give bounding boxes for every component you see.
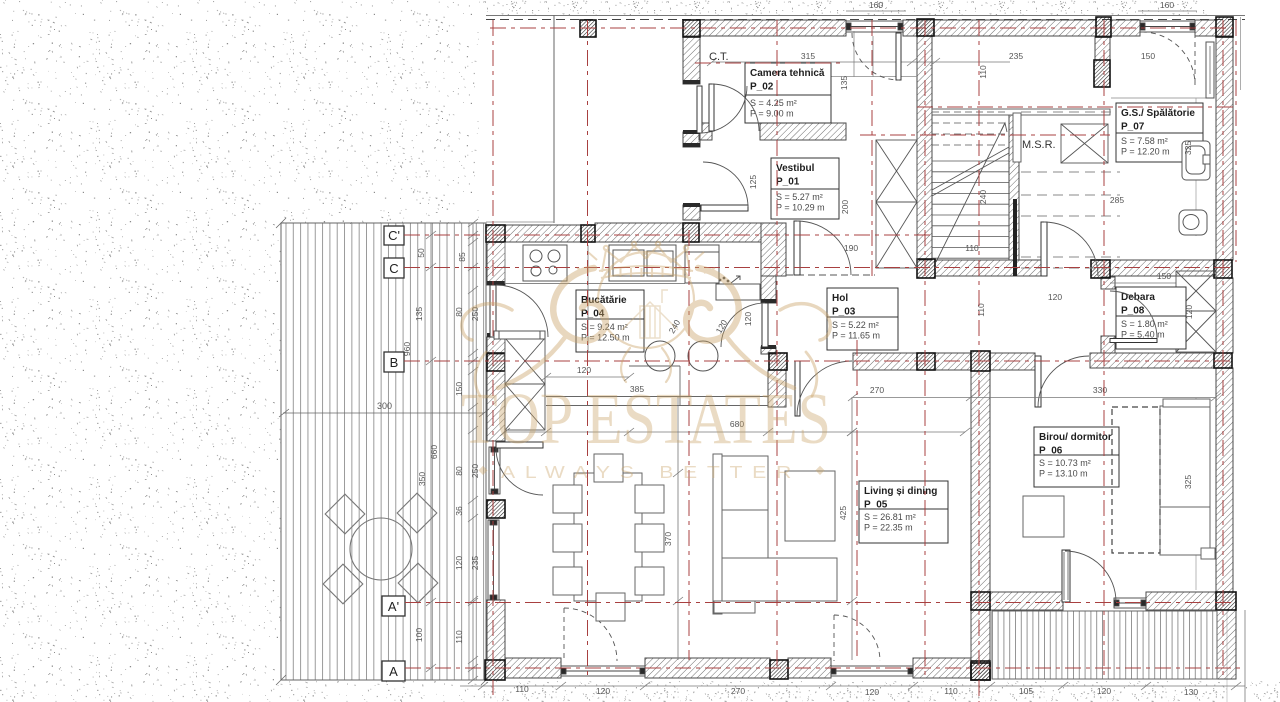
svg-text:125: 125: [748, 175, 758, 189]
svg-text:C: C: [389, 261, 398, 276]
svg-text:150: 150: [1157, 271, 1171, 281]
svg-text:325: 325: [1183, 141, 1193, 155]
svg-text:110: 110: [454, 630, 464, 644]
svg-text:110: 110: [976, 303, 986, 317]
svg-text:80: 80: [454, 466, 464, 476]
svg-text:235: 235: [470, 556, 480, 570]
svg-text:S = 5.27 m²: S = 5.27 m²: [776, 192, 823, 202]
svg-text:660: 660: [429, 445, 439, 459]
svg-text:160: 160: [869, 0, 883, 10]
svg-text:P = 12.20 m: P = 12.20 m: [1121, 147, 1170, 157]
svg-text:100: 100: [414, 628, 424, 642]
svg-text:G.S./ Spălătorie: G.S./ Spălătorie: [1121, 108, 1195, 119]
svg-text:270: 270: [870, 385, 884, 395]
svg-text:350: 350: [417, 472, 427, 486]
svg-text:120: 120: [1097, 686, 1111, 696]
svg-text:330: 330: [1093, 385, 1107, 395]
svg-text:425: 425: [838, 506, 848, 520]
svg-text:120: 120: [1048, 292, 1062, 302]
svg-text:300: 300: [377, 401, 392, 411]
svg-text:270: 270: [731, 686, 745, 696]
svg-text:50: 50: [416, 248, 426, 258]
svg-text:150: 150: [1141, 51, 1155, 61]
svg-text:C.T.: C.T.: [709, 51, 729, 63]
svg-text:110: 110: [944, 686, 958, 696]
svg-text:TOP ESTATES: TOP ESTATES: [461, 378, 831, 459]
svg-text:C': C': [388, 228, 400, 243]
svg-text:S = 5.22 m²: S = 5.22 m²: [832, 320, 879, 330]
svg-text:P_06: P_06: [1039, 446, 1063, 457]
svg-text:120: 120: [577, 365, 591, 375]
svg-text:M.S.R.: M.S.R.: [1022, 139, 1056, 151]
svg-text:A': A': [388, 599, 399, 614]
svg-text:235: 235: [1009, 51, 1023, 61]
svg-text:200: 200: [840, 200, 850, 214]
svg-text:120: 120: [596, 686, 610, 696]
svg-text:120: 120: [743, 312, 753, 326]
svg-text:315: 315: [801, 51, 815, 61]
svg-text:80: 80: [454, 307, 464, 317]
svg-text:P = 22.35 m: P = 22.35 m: [864, 523, 913, 533]
svg-text:ALWAYS BETTER: ALWAYS BETTER: [501, 462, 801, 482]
svg-text:P_07: P_07: [1121, 122, 1145, 133]
svg-text:P_08: P_08: [1121, 306, 1145, 317]
svg-text:S = 26.81 m²: S = 26.81 m²: [864, 512, 916, 522]
svg-text:S = 7.58 m²: S = 7.58 m²: [1121, 136, 1168, 146]
svg-text:160: 160: [1160, 0, 1174, 10]
svg-text:P_05: P_05: [864, 500, 888, 511]
svg-text:Hol: Hol: [832, 293, 848, 304]
svg-text:285: 285: [1110, 195, 1124, 205]
svg-text:S = 10.73 m²: S = 10.73 m²: [1039, 458, 1091, 468]
svg-text:325: 325: [1183, 475, 1193, 489]
svg-text:P = 11.65 m: P = 11.65 m: [832, 331, 880, 341]
svg-text:370: 370: [663, 532, 673, 546]
svg-text:120: 120: [1184, 305, 1194, 319]
svg-text:85: 85: [457, 252, 467, 262]
svg-text:P_01: P_01: [776, 177, 800, 188]
svg-text:135: 135: [414, 307, 424, 321]
svg-text:Living și dining: Living și dining: [864, 486, 937, 497]
svg-text:110: 110: [515, 684, 529, 694]
svg-text:Camera tehnică: Camera tehnică: [750, 68, 825, 79]
svg-text:Birou/ dormitor: Birou/ dormitor: [1039, 432, 1112, 443]
svg-text:135: 135: [839, 76, 849, 90]
svg-text:A: A: [389, 664, 398, 679]
svg-text:B: B: [390, 355, 399, 370]
svg-text:P_03: P_03: [832, 307, 856, 318]
svg-text:Vestibul: Vestibul: [776, 163, 815, 174]
svg-text:P = 13.10 m: P = 13.10 m: [1039, 469, 1088, 479]
svg-text:250: 250: [470, 464, 480, 478]
svg-text:P_02: P_02: [750, 82, 774, 93]
svg-text:130: 130: [1184, 687, 1198, 697]
svg-text:36: 36: [454, 506, 464, 516]
svg-text:190: 190: [844, 243, 858, 253]
svg-text:105: 105: [1019, 686, 1033, 696]
svg-text:110: 110: [965, 243, 979, 253]
svg-text:120: 120: [454, 556, 464, 570]
svg-text:S = 1.80 m²: S = 1.80 m²: [1121, 319, 1168, 329]
svg-text:S = 4.25 m²: S = 4.25 m²: [750, 98, 797, 108]
svg-text:P = 10.29 m: P = 10.29 m: [776, 203, 825, 213]
svg-text:120: 120: [865, 687, 879, 697]
